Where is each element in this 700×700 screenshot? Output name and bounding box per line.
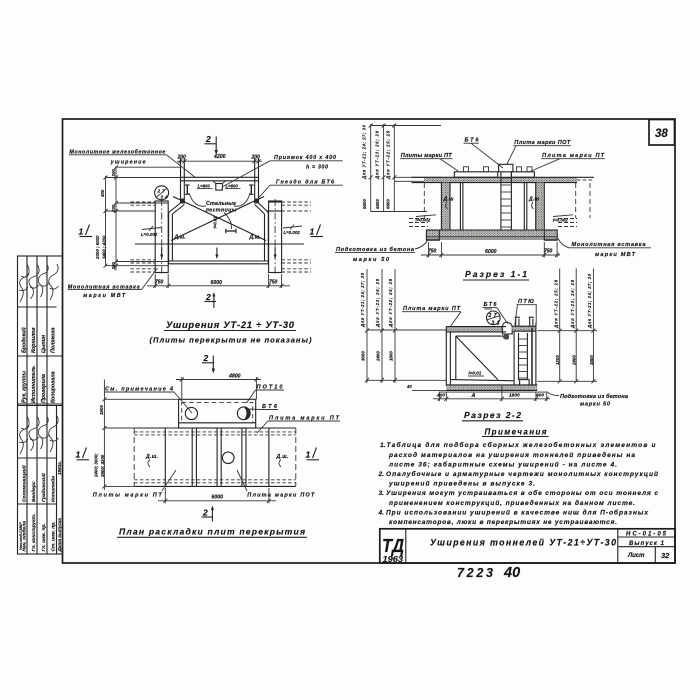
svg-text:План раскладки плит перекрытия: План раскладки плит перекрытия (119, 526, 305, 536)
svg-text:БТ6: БТ6 (262, 404, 278, 410)
svg-text:компенсаторов, люки в перекрыт: компенсаторов, люки в перекрытиях не уст… (389, 519, 617, 526)
svg-text:Копштейн: Копштейн (50, 476, 57, 502)
svg-text:Подготовка из бетона: Подготовка из бетона (336, 246, 414, 253)
svg-text:4200: 4200 (213, 154, 226, 160)
svg-text:38: 38 (655, 128, 668, 140)
svg-text:i=0.002: i=0.002 (553, 218, 568, 223)
svg-text:32: 32 (661, 551, 670, 560)
svg-text:Копировала: Копировала (51, 371, 57, 403)
svg-text:Д.ш.: Д.ш. (145, 454, 158, 460)
svg-text:Д.ш: Д.ш (528, 197, 540, 203)
svg-text:1800: 1800 (509, 393, 520, 399)
svg-text:1: 1 (76, 450, 81, 460)
svg-text:При использовании уширений в к: При использовании уширений в качестве ни… (386, 508, 648, 516)
svg-text:Лист: Лист (627, 553, 645, 559)
svg-text:БТ6: БТ6 (465, 138, 480, 144)
svg-text:Стальные: Стальные (206, 201, 236, 207)
svg-text:1200: 1200 (555, 355, 560, 365)
svg-text:Гнездо для БТ6: Гнездо для БТ6 (276, 180, 335, 186)
svg-text:Плиты марки ПТ: Плиты марки ПТ (401, 153, 453, 159)
svg-text:1963: 1963 (383, 554, 404, 564)
svg-text:750: 750 (269, 280, 278, 286)
svg-text:Подготовка из бетона: Подготовка из бетона (560, 393, 628, 400)
svg-text:34: 34 (161, 195, 168, 200)
svg-text:3400 ; 4200: 3400 ; 4200 (101, 235, 106, 259)
svg-text:1: 1 (79, 227, 84, 237)
svg-text:2000 ; 6000: 2000 ; 6000 (95, 235, 100, 260)
svg-text:i=0.01: i=0.01 (468, 371, 481, 376)
svg-text:Плита марки ПОТ: Плита марки ПОТ (514, 140, 571, 146)
svg-text:Плиты марки ПТ: Плиты марки ПТ (93, 492, 163, 498)
svg-text:3600; 4200: 3600; 4200 (100, 454, 105, 477)
svg-text:2400; 3000;: 2400; 3000; (94, 453, 99, 478)
svg-text:Приямок 400 х 400: Приямок 400 х 400 (274, 155, 336, 161)
svg-text:Дата выпуска: Дата выпуска (57, 518, 62, 553)
svg-text:Д.ш.: Д.ш. (276, 454, 289, 460)
svg-text:Плита марки ПТ: Плита марки ПТ (403, 306, 461, 312)
svg-text:Д.ш.: Д.ш. (174, 235, 186, 241)
svg-text:уширение: уширение (110, 159, 146, 165)
svg-text:ТД: ТД (382, 536, 404, 556)
svg-text:400: 400 (100, 189, 105, 198)
svg-text:6400: 6400 (386, 199, 391, 209)
svg-text:750: 750 (155, 280, 164, 286)
svg-text:лестницы: лестницы (205, 208, 237, 214)
svg-text:марки МВТ: марки МВТ (83, 293, 126, 299)
svg-text:Д.ш.: Д.ш. (249, 235, 261, 241)
svg-text:Цыпин: Цыпин (41, 334, 47, 353)
svg-text:Для УТ-23; 26; 29: Для УТ-23; 26; 29 (375, 278, 380, 328)
svg-text:Выпуск 1: Выпуск 1 (629, 541, 665, 547)
svg-text:4.: 4. (378, 509, 385, 516)
svg-text:Бродский: Бродский (21, 327, 28, 353)
svg-text:2: 2 (203, 353, 209, 363)
svg-text:Плита марки ПТ: Плита марки ПТ (269, 415, 340, 421)
svg-text:L=0.002: L=0.002 (141, 232, 158, 237)
svg-text:200: 200 (111, 262, 116, 271)
svg-text:L=600: L=600 (198, 184, 211, 189)
svg-text:БТ6: БТ6 (484, 302, 498, 308)
svg-text:200: 200 (111, 169, 116, 178)
svg-text:2: 2 (205, 292, 211, 302)
svg-text:1963г.: 1963г. (57, 461, 62, 475)
svg-text:Разрез 2-2: Разрез 2-2 (464, 410, 521, 420)
svg-text:Полякова: Полякова (51, 327, 57, 353)
svg-text:6400: 6400 (375, 199, 380, 209)
svg-text:Уширения могут устраиваться в: Уширения могут устраиваться в обе сторон… (386, 489, 658, 497)
svg-text:Проверила: Проверила (41, 374, 47, 403)
svg-text:Уширения тоннелей УТ-21÷УТ-30: Уширения тоннелей УТ-21÷УТ-30 (430, 538, 616, 548)
svg-text:марки 50: марки 50 (580, 402, 611, 408)
svg-text:расход материалов на уширения: расход материалов на уширения тоннелей п… (388, 451, 635, 459)
svg-text:1.: 1. (380, 442, 386, 449)
svg-text:марки МВТ: марки МВТ (595, 252, 636, 258)
svg-text:1800: 1800 (99, 405, 104, 415)
svg-text:40: 40 (406, 384, 412, 389)
svg-text:А: А (471, 393, 476, 399)
svg-text:Гл. инж. пр.: Гл. инж. пр. (41, 523, 47, 551)
svg-text:400: 400 (436, 393, 445, 399)
svg-text:5400: 5400 (362, 199, 367, 209)
svg-text:Для УТ-22; 25; 28: Для УТ-22; 25; 28 (553, 279, 558, 329)
svg-text:Плита марки ПОТ: Плита марки ПОТ (247, 492, 315, 498)
svg-text:Для УТ-22; 25; 28: Для УТ-22; 25; 28 (385, 130, 390, 180)
svg-text:листе 36; габаритные схемы уши: листе 36; габаритные схемы уширений - на… (388, 460, 617, 468)
svg-text:Для УТ-23; 26; 29: Для УТ-23; 26; 29 (570, 279, 575, 329)
svg-text:6000: 6000 (212, 495, 224, 501)
svg-text:Рук. группы: Рук. группы (22, 371, 28, 403)
svg-text:Исполнитель: Исполнитель (31, 366, 37, 403)
svg-text:уширений приведены в выпуске 3: уширений приведены в выпуске 3. (388, 480, 535, 488)
svg-text:ПТЮ: ПТЮ (518, 299, 534, 305)
svg-text:Д.ш: Д.ш (443, 197, 455, 203)
svg-text:2: 2 (205, 134, 211, 144)
svg-text:Для УТ-23; 26; 29: Для УТ-23; 26; 29 (375, 130, 380, 180)
svg-text:Ст. инж. пр.: Ст. инж. пр. (51, 521, 57, 551)
svg-text:Опалубочные и арматурные черте: Опалубочные и арматурные чертежи монолит… (386, 470, 658, 478)
svg-text:Разрез 1-1: Разрез 1-1 (465, 269, 527, 279)
svg-text:3400: 3400 (589, 355, 594, 365)
svg-text:750: 750 (544, 249, 553, 255)
svg-text:40: 40 (503, 565, 520, 581)
svg-text:Для УТ-21; 24; 27; 30: Для УТ-21; 24; 27; 30 (360, 272, 365, 328)
svg-text:2.: 2. (378, 471, 385, 478)
svg-text:3.: 3. (379, 490, 385, 497)
svg-text:1800: 1800 (388, 351, 393, 361)
svg-text:Корнилов: Корнилов (31, 327, 37, 353)
svg-text:750: 750 (428, 249, 437, 255)
svg-text:Нач.отд.СМКР: Нач.отд.СМКР (19, 522, 23, 550)
svg-text:6000: 6000 (485, 249, 497, 255)
svg-text:Таблица для подбора сборных же: Таблица для подбора сборных железобетонн… (387, 441, 656, 449)
svg-text:применением конструкций, приве: применением конструкций, приведенных на … (389, 499, 635, 507)
svg-text:1: 1 (306, 450, 311, 460)
svg-text:2400: 2400 (375, 351, 380, 362)
svg-text:3000: 3000 (360, 351, 365, 361)
svg-text:Монолитная вставка: Монолитная вставка (572, 242, 646, 248)
svg-text:Плита марки ПТ: Плита марки ПТ (542, 153, 605, 159)
svg-text:2: 2 (202, 507, 208, 517)
svg-text:i=0.01: i=0.01 (213, 216, 218, 229)
svg-text:Для УТ-22; 25; 28: Для УТ-22; 25; 28 (388, 278, 393, 328)
svg-text:Соломоницкий: Соломоницкий (21, 465, 28, 502)
svg-text:6000: 6000 (211, 280, 223, 286)
svg-text:2400: 2400 (572, 355, 577, 366)
svg-text:400: 400 (535, 393, 544, 399)
svg-text:Градинский: Градинский (40, 473, 47, 502)
svg-text:i=0.002: i=0.002 (416, 218, 431, 223)
svg-text:200: 200 (111, 204, 116, 213)
svg-text:Гл. конструкт.: Гл. конструкт. (31, 514, 37, 552)
svg-text:Уширения УТ-21 ÷ УТ-30: Уширения УТ-21 ÷ УТ-30 (166, 319, 295, 330)
svg-text:Монолитное железобетонное: Монолитное железобетонное (69, 148, 165, 155)
svg-text:(Плиты перекрытия не показаны): (Плиты перекрытия не показаны) (150, 336, 312, 345)
svg-text:Бендерс: Бендерс (31, 481, 37, 502)
svg-text:Для УТ-21; 24; 27; 30: Для УТ-21; 24; 27; 30 (362, 124, 367, 180)
svg-text:4800: 4800 (228, 374, 241, 380)
svg-text:Примечания: Примечания (485, 428, 547, 437)
svg-text:h = 300: h = 300 (306, 165, 328, 171)
svg-text:L=0.002: L=0.002 (284, 230, 301, 235)
svg-text:Для УТ-21; 24; 27; 30: Для УТ-21; 24; 27; 30 (587, 273, 592, 329)
svg-text:1: 1 (310, 227, 315, 237)
